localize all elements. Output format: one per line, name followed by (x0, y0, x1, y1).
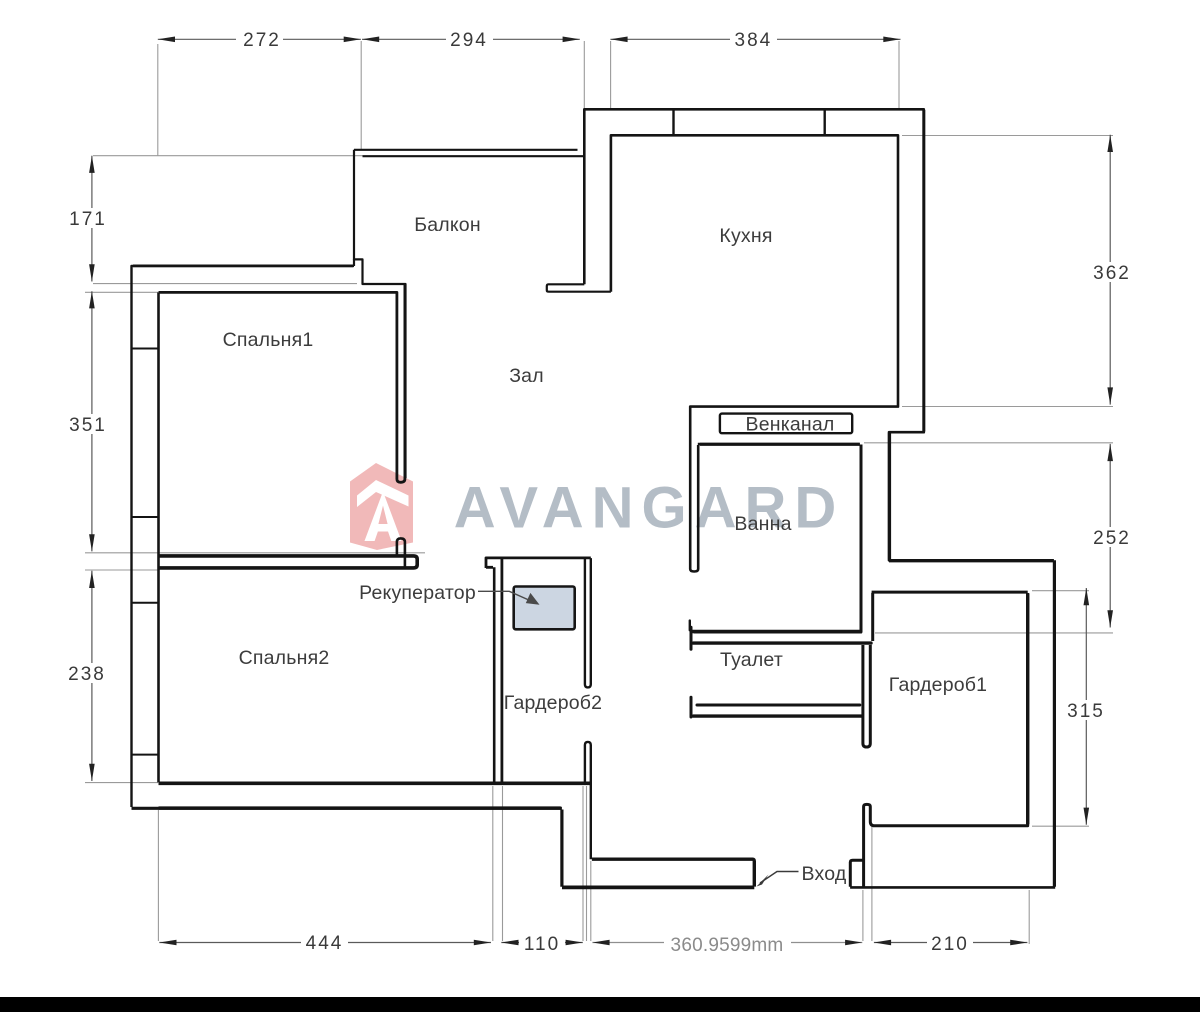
svg-text:Туалет: Туалет (720, 649, 783, 671)
svg-text:351: 351 (69, 415, 107, 436)
svg-text:Венканал: Венканал (745, 414, 834, 436)
svg-text:210: 210 (931, 934, 969, 955)
svg-text:Гардероб1: Гардероб1 (889, 674, 987, 696)
svg-text:Зал: Зал (509, 365, 544, 387)
svg-text:252: 252 (1093, 528, 1131, 549)
svg-text:110: 110 (524, 934, 560, 955)
svg-text:Балкон: Балкон (414, 214, 481, 236)
svg-text:Спальня2: Спальня2 (239, 647, 330, 669)
svg-text:Вход: Вход (802, 863, 847, 885)
svg-text:384: 384 (735, 30, 773, 51)
svg-text:294: 294 (450, 30, 488, 51)
svg-text:171: 171 (69, 209, 107, 230)
svg-text:444: 444 (306, 933, 344, 954)
svg-text:360.9599mm: 360.9599mm (671, 935, 784, 956)
svg-text:238: 238 (68, 664, 106, 685)
svg-text:315: 315 (1067, 701, 1105, 722)
svg-text:Гардероб2: Гардероб2 (504, 692, 602, 714)
svg-text:Ванна: Ванна (734, 513, 791, 535)
svg-text:272: 272 (243, 30, 281, 51)
svg-text:362: 362 (1093, 263, 1131, 284)
svg-text:Рекуператор: Рекуператор (359, 582, 476, 604)
svg-text:Кухня: Кухня (719, 225, 772, 247)
svg-text:Спальня1: Спальня1 (223, 329, 314, 351)
